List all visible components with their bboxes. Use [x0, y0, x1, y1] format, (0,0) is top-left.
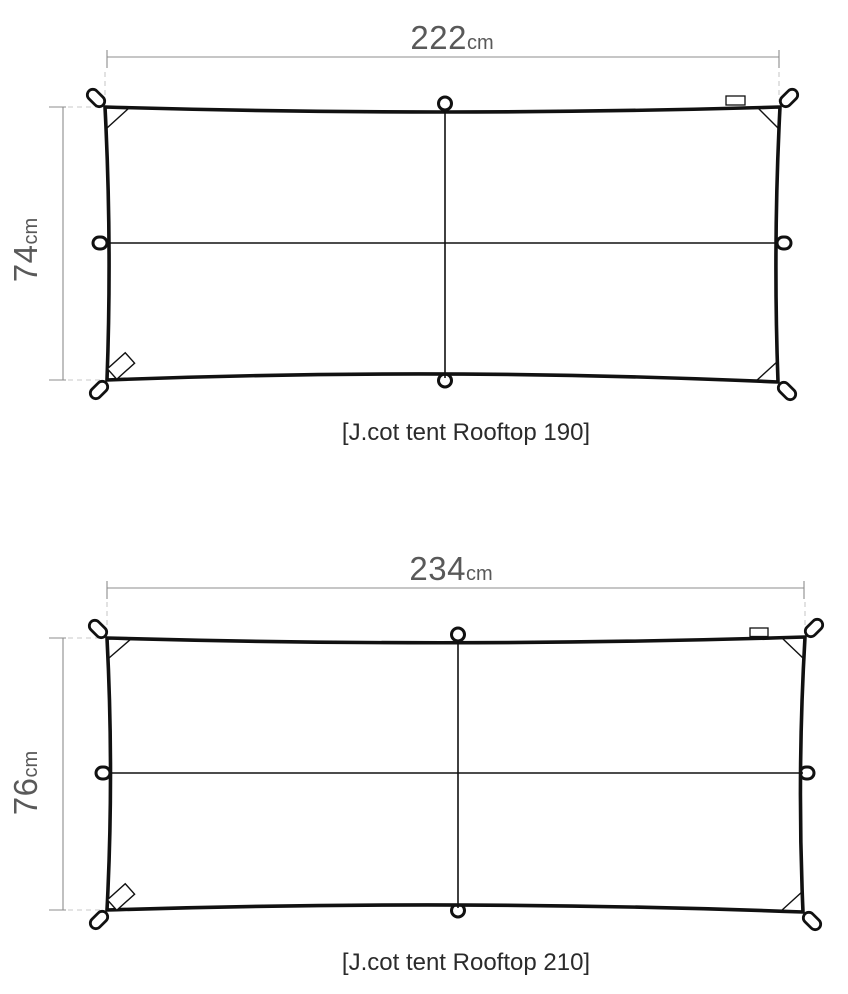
diagram-rooftop-210: 234cm 76cm [J.cot tent Rooftop 210]	[7, 550, 825, 976]
corner-loop-bottom-right	[801, 910, 823, 932]
tarp-outline	[107, 637, 805, 912]
diagram-caption-190: [J.cot tent Rooftop 190]	[342, 419, 590, 446]
corner-loop-bottom-left	[88, 909, 110, 931]
corner-loop-top-left	[85, 87, 107, 109]
mid-edge-loop-top	[439, 97, 452, 110]
corner-loop-top-right	[778, 87, 800, 109]
tent-rooftop-size-diagrams: 222cm 74cm [J.cot tent Rooftop 190]	[0, 0, 848, 994]
mid-edge-loop-left	[93, 237, 107, 249]
width-dimension-label: 234cm	[409, 550, 492, 587]
corner-loop-bottom-left	[88, 379, 110, 401]
corner-loop-top-left	[87, 618, 109, 640]
page: 222cm 74cm [J.cot tent Rooftop 190]	[0, 0, 848, 994]
corner-loop-bottom-right	[776, 380, 798, 402]
width-dimension-label: 222cm	[410, 19, 493, 56]
corner-loop-top-right	[803, 617, 825, 639]
mid-edge-loop-top	[452, 628, 465, 641]
diagram-rooftop-190: 222cm 74cm [J.cot tent Rooftop 190]	[7, 19, 800, 446]
care-label-tag	[750, 628, 768, 637]
mid-edge-loop-left	[96, 767, 110, 779]
mid-edge-loop-right	[777, 237, 791, 249]
diagram-caption-210: [J.cot tent Rooftop 210]	[342, 949, 590, 976]
height-dimension-label: 76cm	[7, 751, 44, 815]
tarp-outline	[105, 107, 780, 382]
height-dimension-label: 74cm	[7, 218, 44, 282]
care-label-tag	[726, 96, 745, 105]
